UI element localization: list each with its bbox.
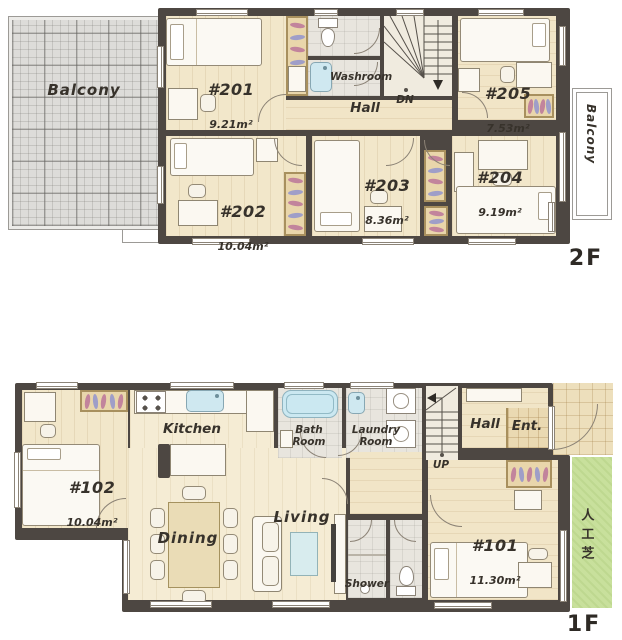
dining-chair (150, 560, 165, 580)
dining-chair (223, 560, 238, 580)
room-201-area: 9.21m² (191, 119, 271, 132)
corridor-floor (350, 452, 422, 514)
room-202-label: #202 10.04m² (203, 184, 283, 272)
room-201-name: #201 (191, 81, 271, 100)
turf-label: 人工芝 (578, 508, 593, 565)
shelf (288, 66, 306, 92)
stairs-dn-label: DN (392, 94, 418, 106)
pillow (532, 23, 546, 47)
washroom-label: Washroom (330, 71, 380, 83)
entrance-label: Ent. (506, 419, 548, 435)
stairs-up-label: UP (426, 459, 456, 471)
washing-machine (386, 388, 416, 414)
laundry-sink (348, 392, 365, 414)
room-202-area: 10.04m² (203, 241, 283, 254)
room-101-name: #101 (455, 537, 535, 556)
desk (24, 392, 56, 422)
stove-icon (136, 391, 166, 413)
room-203-label: #203 8.36m² (347, 158, 427, 246)
living-label: Living (266, 509, 338, 527)
laundry-room-label: Laundry Room (340, 424, 412, 449)
pillow (434, 548, 449, 580)
island-end-panel (158, 444, 170, 478)
room-102-closet (80, 390, 128, 412)
window (170, 382, 234, 389)
balcony-2f-step (122, 230, 160, 243)
dining-chair (223, 534, 238, 554)
pillow (174, 143, 187, 169)
shower-label: Shower (342, 578, 392, 590)
room-202-closet (284, 172, 306, 236)
bath-room-label: Bath Room (280, 424, 338, 449)
window (157, 46, 164, 88)
room-203-name: #203 (347, 177, 427, 196)
toilet-tank (396, 586, 416, 596)
room-101-closet (506, 460, 552, 488)
kitchen-sink (186, 390, 224, 412)
floor-plan-page: { "palette": { "wall": "#4d4742", "wood_… (0, 0, 622, 640)
window (14, 452, 21, 508)
kitchen-island (170, 444, 226, 476)
blanket-line (196, 19, 197, 65)
hall-1f-label: Hall (460, 417, 510, 433)
sofa-cushion (262, 556, 279, 586)
stairs-2f-drawing (384, 16, 452, 96)
kitchen-label: Kitchen (156, 422, 228, 438)
dining-chair (223, 508, 238, 528)
room-204-label: #204 9.19m² (460, 150, 540, 238)
dining-chair (150, 508, 165, 528)
balcony-door-window (559, 132, 566, 202)
room-201-label: #201 9.21m² (191, 62, 271, 150)
room-204-name: #204 (460, 169, 540, 188)
room-203-closet-b (424, 206, 448, 236)
stairs-route-dot (440, 453, 444, 457)
room-204-area: 9.19m² (460, 207, 540, 220)
window (548, 202, 555, 232)
room-101-area: 11.30m² (455, 575, 535, 588)
window (350, 382, 394, 389)
balcony-2f-tiles (12, 20, 158, 226)
room-205-name: #205 (468, 85, 548, 104)
window (560, 530, 567, 602)
stairs-route-dot (404, 88, 408, 92)
balcony-2f-right-label: Balcony (584, 104, 598, 164)
shoe-cabinet (466, 388, 522, 402)
floor-1f-label: 1F (558, 612, 610, 638)
window (150, 601, 212, 608)
pillow (27, 448, 61, 460)
room-102-area: 10.04m² (52, 517, 132, 530)
refrigerator (246, 390, 274, 432)
window (559, 26, 566, 66)
floor-2f-label: 2F (560, 246, 612, 272)
stairs-1f-drawing (426, 386, 458, 460)
shower-bench (348, 554, 386, 556)
window (314, 9, 338, 16)
shoe-box (514, 490, 542, 510)
pillow (170, 24, 184, 60)
coffee-table (290, 532, 318, 576)
window (36, 382, 78, 389)
balcony-2f-label: Balcony (20, 82, 148, 100)
dining-chair (182, 486, 206, 500)
window (157, 166, 164, 204)
room-101-label: #101 11.30m² (455, 518, 535, 606)
room-102-label: #102 10.04m² (52, 460, 132, 548)
bathtub (282, 390, 338, 418)
window (284, 382, 324, 389)
window (468, 238, 516, 245)
desk-chair (40, 424, 56, 438)
room-102-name: #102 (52, 479, 132, 498)
toilet-icon (399, 566, 414, 586)
dining-label: Dining (152, 530, 224, 548)
window (478, 9, 524, 16)
washroom-sink (310, 62, 332, 92)
room-205-area: 7.53m² (468, 123, 548, 136)
room-205-label: #205 7.53m² (468, 66, 548, 154)
window (272, 601, 330, 608)
window (396, 9, 424, 16)
window (196, 9, 248, 16)
toilet-tank (318, 18, 338, 28)
room-202-name: #202 (203, 203, 283, 222)
hall-2f-label: Hall (340, 101, 390, 117)
tv-icon (331, 524, 336, 582)
room-203-area: 8.36m² (347, 215, 427, 228)
